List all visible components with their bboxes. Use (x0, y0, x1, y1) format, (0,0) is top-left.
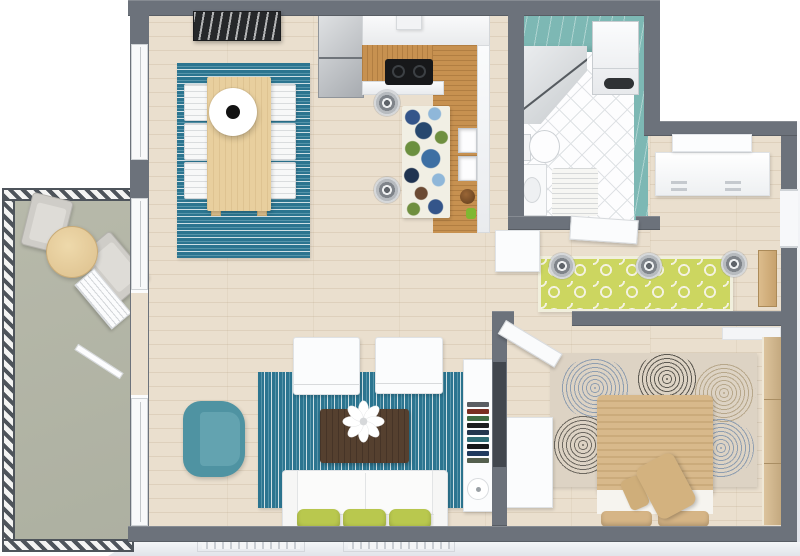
entry-sideboard (655, 152, 770, 196)
dining-pendant-center (226, 105, 240, 119)
armchair-seat-edge (294, 384, 359, 385)
kitchen-upper-cabinets (362, 13, 490, 47)
wall-bottom (128, 526, 797, 542)
book-spine (467, 430, 489, 435)
kitchen-base-cabinet-side (477, 45, 490, 233)
hall-console-cabinet (495, 230, 540, 272)
wall-tv (493, 362, 506, 467)
book-spine (467, 423, 489, 428)
book-spine (467, 444, 489, 449)
book-stack (466, 400, 490, 466)
kitchen-floral-rug (402, 106, 450, 218)
drawer-handle (725, 181, 741, 184)
wall-bedroom-top (572, 311, 781, 326)
tv-console (463, 359, 493, 512)
speaker-center (476, 487, 481, 492)
armchair-seat-edge (376, 383, 442, 384)
book-spine (467, 416, 489, 421)
sofa-armrest (283, 471, 298, 531)
bowl (460, 189, 475, 204)
bath-mat (552, 168, 598, 216)
bed-pillow (601, 511, 652, 527)
book-spine (467, 402, 489, 407)
entry-door-panel (758, 250, 777, 307)
round-speaker (467, 478, 489, 500)
wall-bathroom-bottom (636, 216, 660, 230)
fridge-seam (319, 57, 363, 59)
drawer-handle (725, 188, 741, 191)
hall-pendant-light (720, 250, 748, 278)
book-spine (467, 409, 489, 414)
floor-plan-render (0, 0, 800, 556)
teal-armchair (183, 401, 245, 477)
balcony-railing-bottom (2, 539, 134, 552)
dining-chair (270, 123, 296, 160)
kitchen-pendant-light (373, 176, 401, 204)
bedroom-desk (504, 417, 553, 508)
book-spine (467, 437, 489, 442)
wall-art (193, 11, 281, 41)
washer-seam (593, 68, 638, 69)
hall-pendant-light (548, 252, 576, 280)
entry-doorway (780, 189, 798, 248)
burner (392, 65, 405, 78)
window-dining (131, 44, 148, 160)
washing-machine (592, 21, 639, 95)
washer-door (604, 78, 634, 89)
sofa (282, 470, 448, 532)
ceiling-light-panel (672, 134, 752, 152)
vanity-basin (523, 177, 541, 203)
toilet-bowl (529, 130, 560, 163)
wall-right (781, 121, 797, 542)
window-living-lower (131, 398, 148, 526)
flower-decor (341, 399, 386, 444)
balcony-railing-top (2, 188, 134, 201)
balcony-door-opening (131, 290, 148, 398)
cooktop (385, 59, 433, 85)
book-spine (467, 458, 489, 463)
wardrobe (762, 337, 783, 525)
kitchen-pendant-light (373, 89, 401, 117)
bed (597, 395, 713, 528)
dining-pendant-lamp (209, 88, 257, 136)
plant (466, 208, 476, 219)
fridge-freezer (318, 14, 364, 98)
teal-armchair-seat (200, 412, 240, 466)
wall-bathroom-bottom (508, 216, 574, 230)
sofa-armrest (432, 471, 447, 531)
window-living-upper (131, 198, 148, 290)
white-armchair (293, 337, 360, 395)
drawer-handle (671, 181, 687, 184)
hall-pendant-light (635, 252, 663, 280)
drawer-handle (671, 188, 687, 191)
dining-chair (270, 162, 296, 199)
dining-chair (270, 84, 296, 121)
kitchen-sink (458, 156, 477, 181)
wall-bathroom-right (644, 0, 660, 136)
bathroom-door-panel (569, 216, 639, 245)
wall-bathroom-left (508, 0, 524, 230)
balcony-railing-left (2, 188, 15, 552)
burner (413, 65, 426, 78)
kitchen-sink (458, 128, 477, 153)
white-armchair (375, 337, 443, 394)
book-spine (467, 451, 489, 456)
